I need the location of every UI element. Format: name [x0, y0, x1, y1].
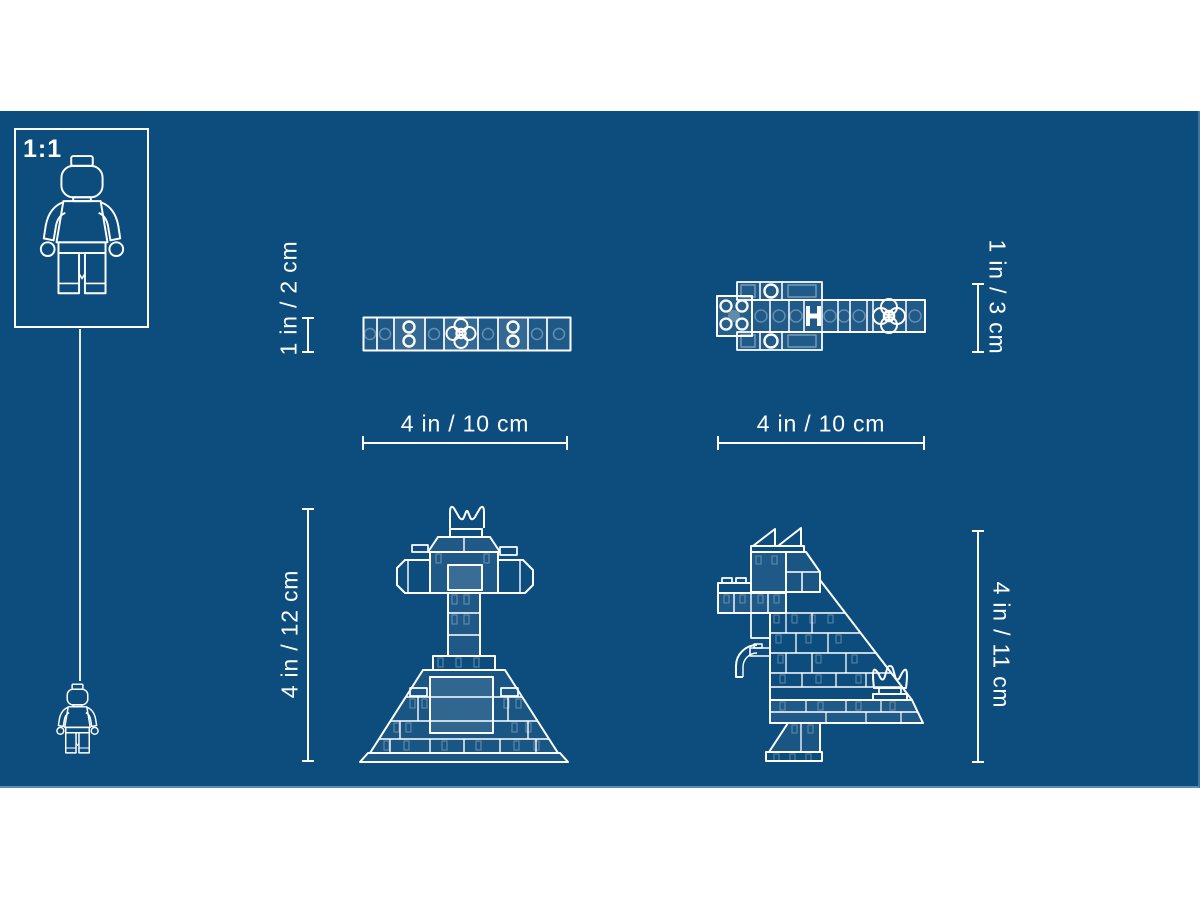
dinosaur-height-dimension-line [972, 530, 984, 763]
scale-reference-box: 1:1 [14, 128, 149, 328]
scale-connector-line [79, 329, 81, 681]
crocodile-width-dimension-line [717, 436, 925, 450]
minifigure-icon [33, 154, 131, 311]
flat-plate-width-dimension-line [362, 436, 568, 450]
flat-plate-height-dimension-line [302, 317, 314, 353]
blueprint-canvas: 1:1 [0, 111, 1200, 788]
tower-height-dimension-line [302, 508, 314, 762]
minifigure-small-icon [53, 683, 102, 762]
crocodile-build-drawing [716, 278, 926, 354]
crocodile-height-dimension-line [972, 283, 984, 353]
flat-plate-build-drawing [362, 314, 572, 354]
dinosaur-build-drawing [716, 526, 926, 764]
tower-build-drawing [360, 502, 568, 762]
